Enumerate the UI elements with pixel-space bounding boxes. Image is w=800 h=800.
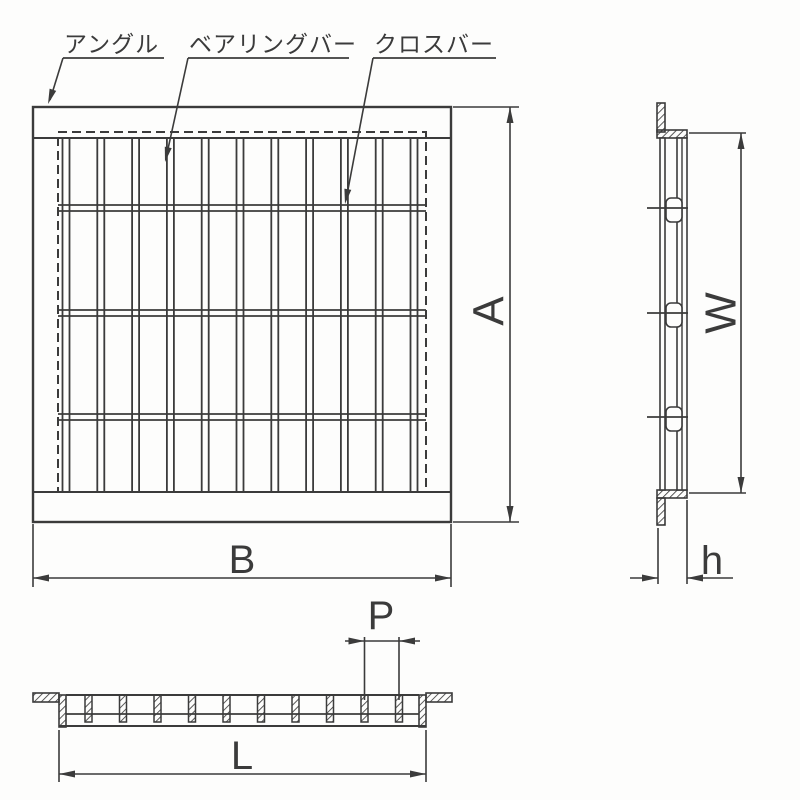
frame-edge-strip [660, 138, 665, 490]
bearing-bar [167, 138, 174, 492]
bearing-bar-section [85, 695, 92, 722]
cross-bar-profile [666, 303, 682, 327]
bearing-bars [63, 138, 418, 492]
bearing-bar-section [292, 695, 299, 722]
bearing-bar [202, 138, 209, 492]
arrowhead [349, 638, 365, 645]
bearing-bar [376, 138, 383, 492]
arrowhead [507, 506, 514, 522]
left-angle-flange [33, 693, 59, 702]
right-angle-flange [426, 693, 452, 702]
bearing-bar [97, 138, 104, 492]
bearing-bar [271, 138, 278, 492]
arrowhead [507, 107, 514, 123]
label-angle-arrow [48, 89, 56, 104]
label-angle: アングル [64, 31, 159, 57]
top-angle-horizontal-leg [657, 130, 687, 138]
label-bearing-bar: ベアリングバー [189, 31, 357, 57]
label-cross-bar-leader [346, 58, 373, 200]
cross-bar-profile [666, 407, 682, 431]
grating-drawing: A B アングル ベアリングバー クロスバー [0, 0, 800, 800]
bottom-angle-vertical-leg [657, 498, 665, 525]
bearing-bar-section [120, 695, 127, 722]
bearing-bar [237, 138, 244, 492]
bearing-bar [411, 138, 418, 492]
bearing-bar [306, 138, 313, 492]
dim-label-W: W [697, 292, 746, 334]
bearing-bar [132, 138, 139, 492]
dim-label-h: h [701, 539, 723, 583]
bottom-angle-horizontal-leg [657, 490, 687, 498]
drawing-canvas: A B アングル ベアリングバー クロスバー [0, 0, 800, 800]
arrowhead [59, 771, 75, 778]
right-angle-leg [419, 695, 426, 727]
dim-label-P: P [368, 594, 395, 638]
cross-bar-profile [666, 198, 682, 222]
dim-label-A: A [465, 296, 514, 326]
arrowhead [410, 771, 426, 778]
arrowhead [738, 133, 745, 149]
bearing-bar-section [327, 695, 334, 722]
bearing-bar-section [154, 695, 161, 722]
bearing-bar-section [189, 695, 196, 722]
top-angle-vertical-leg [657, 103, 665, 132]
bearing-bar-section [223, 695, 230, 722]
side-view [647, 103, 688, 525]
label-cross-bar: クロスバー [374, 31, 494, 57]
bearing-bar [63, 138, 70, 492]
bottom-view [33, 693, 452, 727]
dimension-P [345, 637, 420, 700]
front-view [33, 107, 451, 522]
arrowhead [33, 575, 49, 582]
arrowhead [642, 575, 658, 582]
arrowhead [738, 477, 745, 493]
dim-label-L: L [231, 734, 253, 778]
left-angle-leg [59, 695, 66, 727]
bearing-bar-sections [85, 695, 403, 722]
dim-label-B: B [229, 538, 256, 582]
arrowhead [399, 638, 415, 645]
arrowhead [435, 575, 451, 582]
bearing-bar-section [258, 695, 265, 722]
